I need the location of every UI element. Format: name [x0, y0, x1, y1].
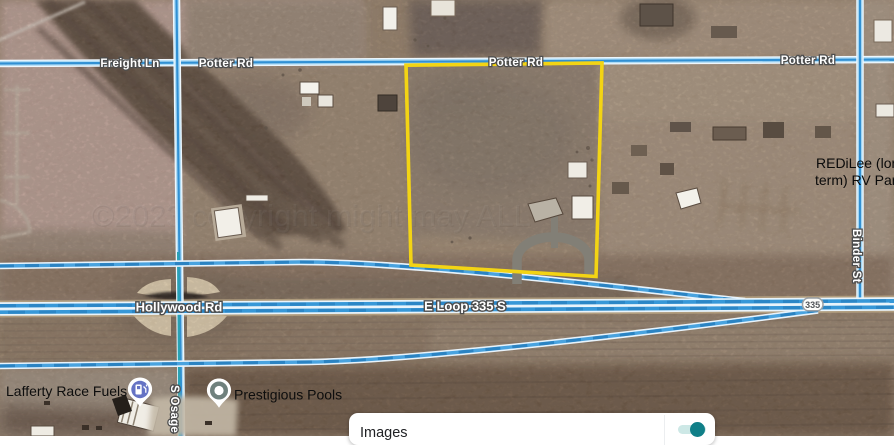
- svg-text:Potter Rd: Potter Rd: [199, 58, 253, 70]
- svg-text:Binder St: Binder St: [850, 229, 862, 283]
- svg-text:335: 335: [805, 300, 820, 310]
- svg-text:Hollywood Rd: Hollywood Rd: [136, 300, 223, 315]
- svg-text:term) RV Par: term) RV Par: [815, 172, 894, 188]
- svg-text:E Loop 335 S: E Loop 335 S: [424, 299, 506, 314]
- svg-text:Potter Rd: Potter Rd: [781, 55, 835, 67]
- svg-text:S Osage: S Osage: [168, 385, 180, 433]
- svg-text:Lafferty Race Fuels: Lafferty Race Fuels: [6, 383, 127, 399]
- svg-text:Freight Ln: Freight Ln: [100, 58, 159, 70]
- svg-text:Prestigious Pools: Prestigious Pools: [234, 387, 342, 403]
- svg-text:Potter Rd: Potter Rd: [489, 57, 543, 69]
- svg-text:REDiLee (lon: REDiLee (lon: [816, 155, 894, 171]
